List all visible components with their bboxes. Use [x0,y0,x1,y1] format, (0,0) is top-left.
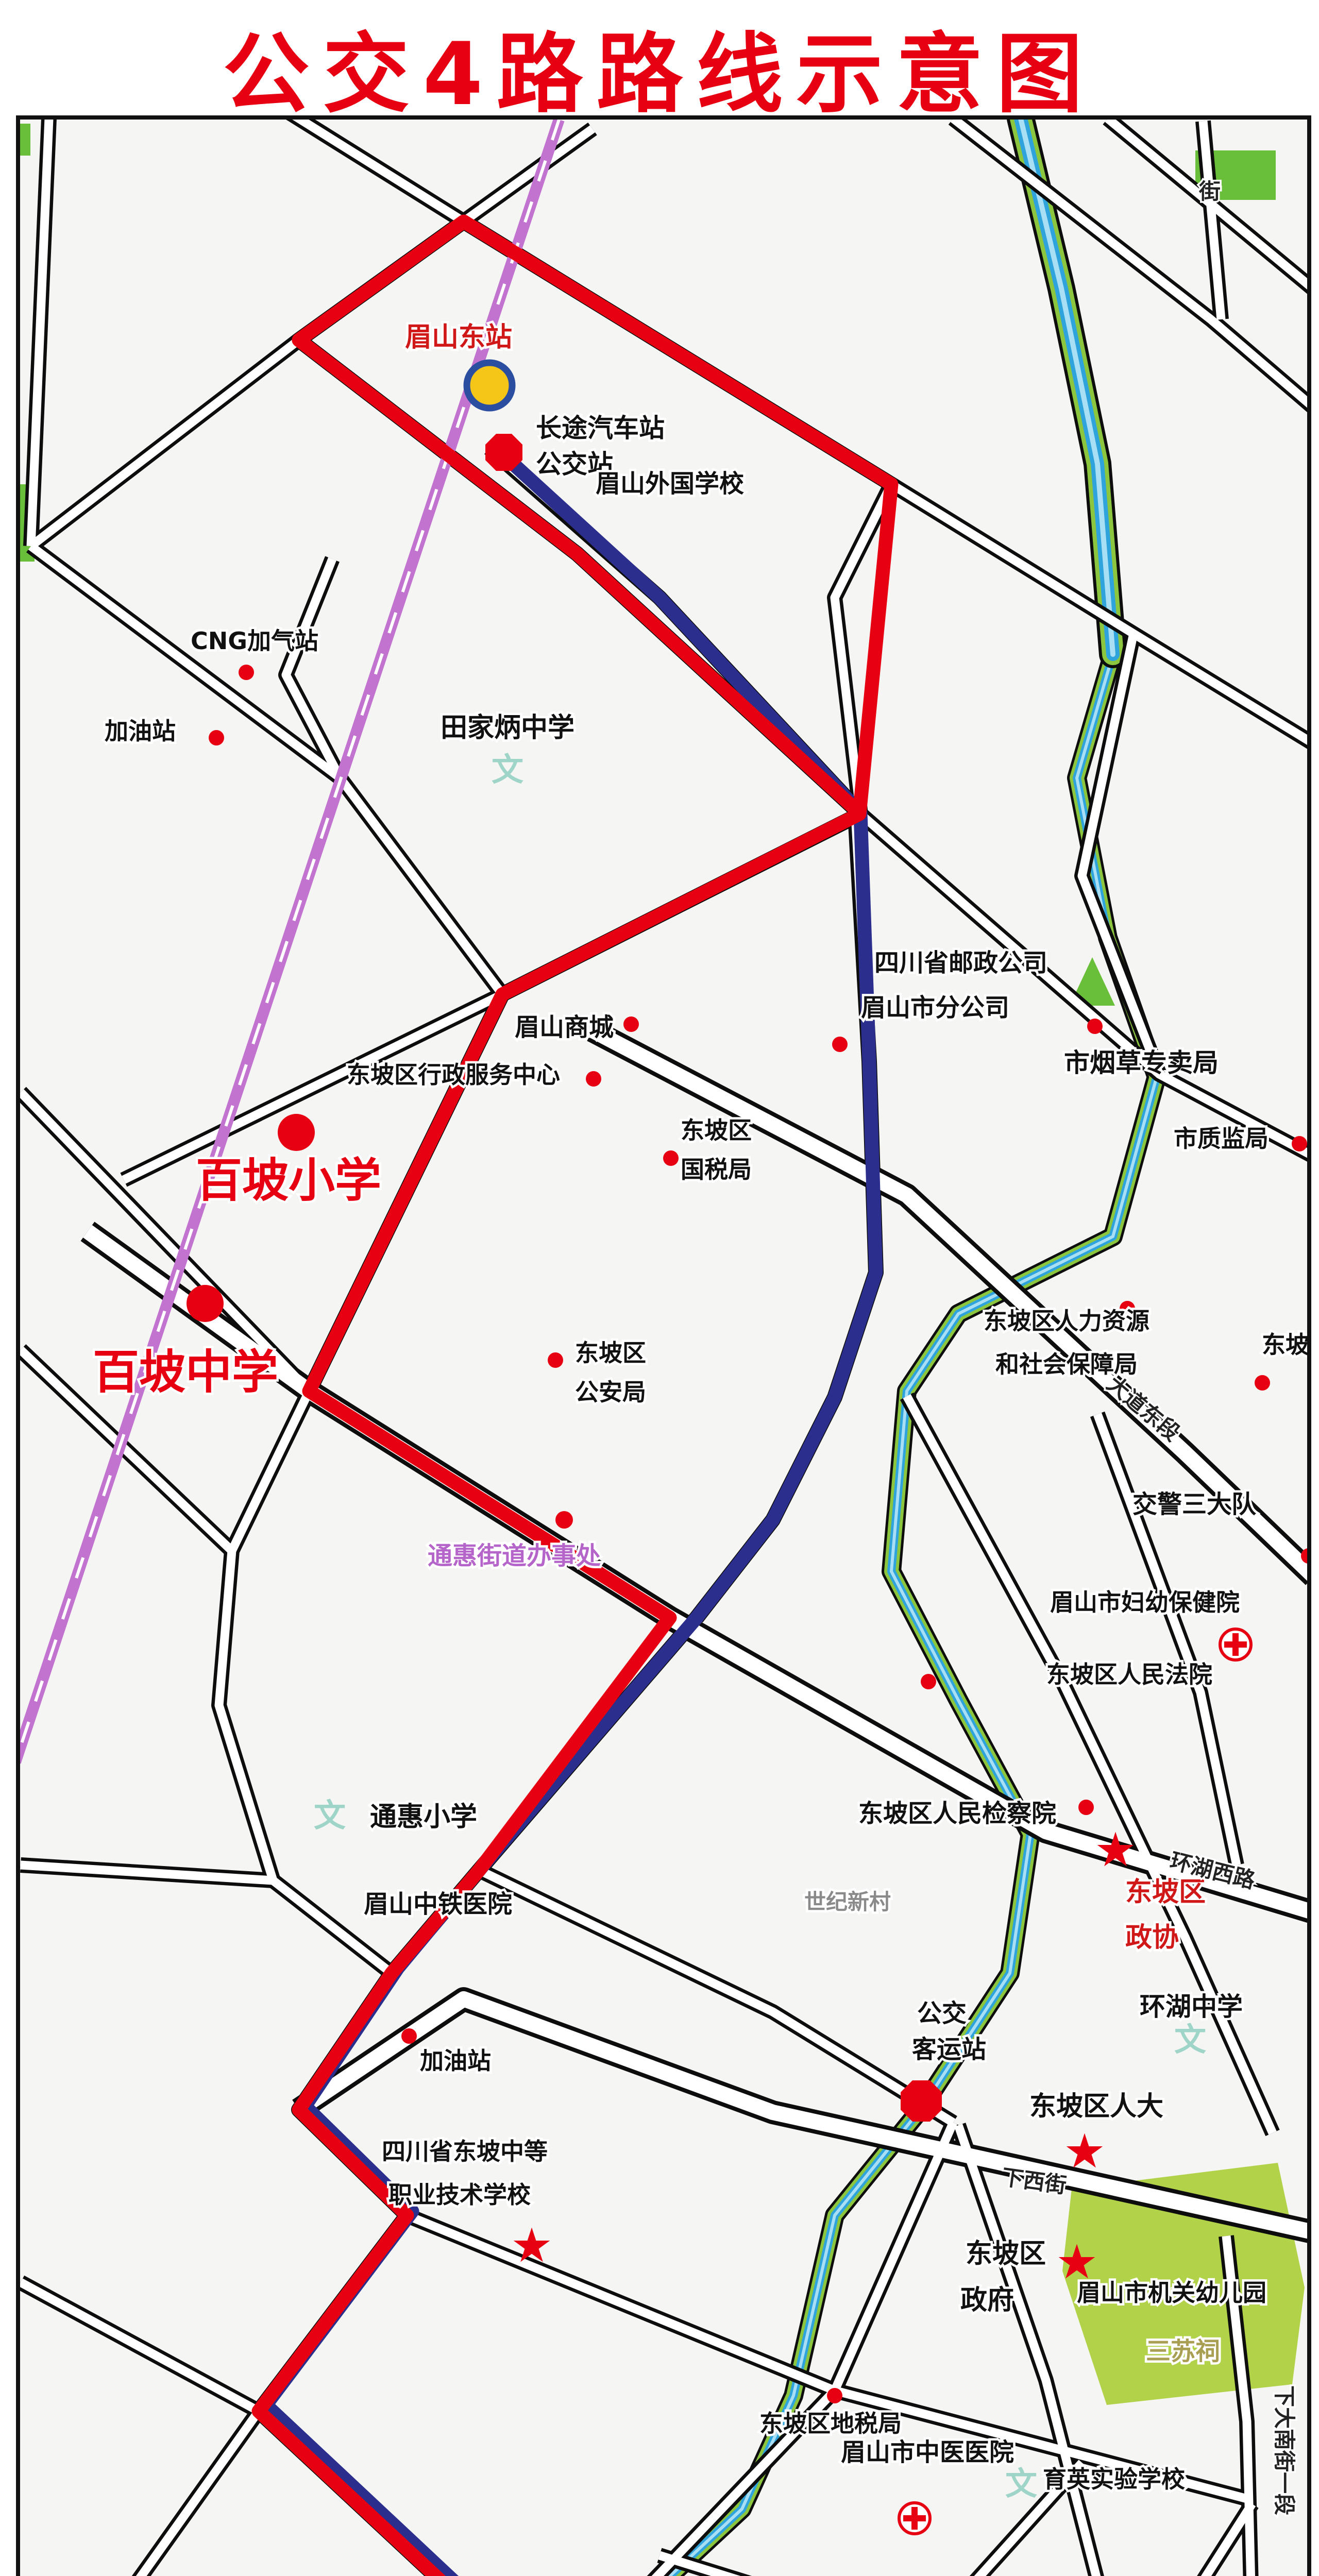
dot-jianchayuan [1078,1800,1094,1815]
dot-baipo-primary [278,1114,315,1151]
dot-tobacco [1087,1019,1103,1034]
dot-postal [832,1037,848,1052]
label-tonghui-office: 通惠街道办事处 [428,1541,601,1570]
street-edge-jie: 街 [1198,179,1221,204]
cross-fuyou-icon [1220,1629,1251,1660]
star-renda-icon: ★ [1063,2124,1106,2179]
label-keyun-1: 公交 [917,1999,967,2028]
label-changtu-1: 长途汽车站 [536,413,665,443]
label-gas-south: 加油站 [420,2047,491,2075]
map-canvas: ★ ★ ★ ★ 文 文 [0,0,1319,2576]
star-zhengxie-icon: ★ [1094,1822,1137,1877]
terminal-circle-icon [467,363,512,408]
cross-zhongyi-icon [899,2503,930,2534]
label-fuyou: 眉山市妇幼保健院 [1050,1588,1240,1616]
label-cng: CNG加气站 [191,627,318,655]
dot-cng [239,665,254,680]
label-gas-north: 加油站 [105,717,176,745]
dot-baipo-middle [187,1285,224,1322]
street-xiadanan: 下大南街一段 [1272,2385,1297,2515]
label-tobacco: 市烟草专卖局 [1064,1048,1219,1078]
label-jiguan-kindergarten: 眉山市机关幼儿园 [1077,2279,1266,2307]
dot-gas-north [209,730,224,745]
school-icon-tonghui: 文 [314,1797,346,1834]
label-zhengfu-1: 东坡区 [966,2239,1046,2269]
label-guoshui-1: 东坡区 [681,1116,752,1144]
star-zhongyi-west-icon: ★ [511,2218,553,2273]
label-guoshui-2: 国税局 [681,1156,752,1183]
dot-zhijianju [1292,1136,1307,1151]
label-police-1: 东坡区 [575,1339,646,1367]
label-admin-center: 东坡区行政服务中心 [347,1061,560,1089]
label-postal-1: 四川省邮政公司 [874,948,1047,977]
label-shiji-xincun: 世纪新村 [804,1889,891,1914]
dot-shangcheng [623,1016,639,1032]
label-waiguo-school: 眉山外国学校 [596,469,744,498]
label-renli-1: 东坡区人力资源 [984,1307,1149,1335]
label-zhiye-1: 四川省东坡中等 [382,2138,548,2165]
label-baipo-middle: 百坡中学 [93,1345,278,1399]
label-keyun-2: 客运站 [912,2035,986,2064]
school-icon-yuying: 文 [1005,2465,1037,2502]
label-police-2: 公安局 [575,1378,646,1406]
label-shangcheng: 眉山商城 [515,1013,614,1042]
label-zhengxie-1: 东坡区 [1125,1877,1206,1908]
school-icon-tianjiabing: 文 [492,751,523,788]
label-sansuci: 三苏祠 [1146,2337,1220,2366]
label-dishui: 东坡区地税局 [759,2410,902,2437]
label-yuying: 育英实验学校 [1043,2465,1185,2493]
label-jianchayuan: 东坡区人民检察院 [858,1799,1056,1828]
label-fayuan: 东坡区人民法院 [1046,1660,1212,1688]
label-tianjiabing: 田家炳中学 [441,713,574,743]
label-zhiye-2: 职业技术学校 [388,2181,531,2209]
label-renda: 东坡区人大 [1029,2091,1163,2122]
label-zhengxie-2: 政协 [1125,1922,1179,1953]
label-zhongyi: 眉山市中医医院 [841,2438,1014,2467]
label-huanhu-middle: 环湖中学 [1140,1992,1243,2022]
label-jiaojing3: 交警三大队 [1132,1490,1257,1519]
label-meishan-east-station: 眉山东站 [405,322,512,353]
label-zhongtie: 眉山中铁医院 [364,1890,512,1919]
label-tonghui-primary: 通惠小学 [370,1802,477,1833]
dot-fayuan [921,1674,936,1689]
label-baipo-primary: 百坡小学 [196,1154,381,1208]
bus-terminal-octagon-icon [901,2080,942,2122]
dot-police [548,1352,563,1368]
label-zhijianju: 市质监局 [1174,1125,1269,1153]
label-postal-2: 眉山市分公司 [861,993,1009,1022]
label-zhengfu-2: 政府 [960,2285,1014,2316]
dot-gas-south [401,2028,417,2044]
school-icon-huanhu: 文 [1174,2021,1206,2058]
dot-admin [586,1071,601,1087]
bus-station-octagon-icon [485,434,522,471]
dot-dishui [827,2388,842,2403]
page: 公交4路路线示意图 [0,0,1319,2576]
dot-dpq [1255,1375,1270,1391]
dot-guoshui [663,1150,679,1166]
dot-tonghui-office [555,1511,573,1529]
